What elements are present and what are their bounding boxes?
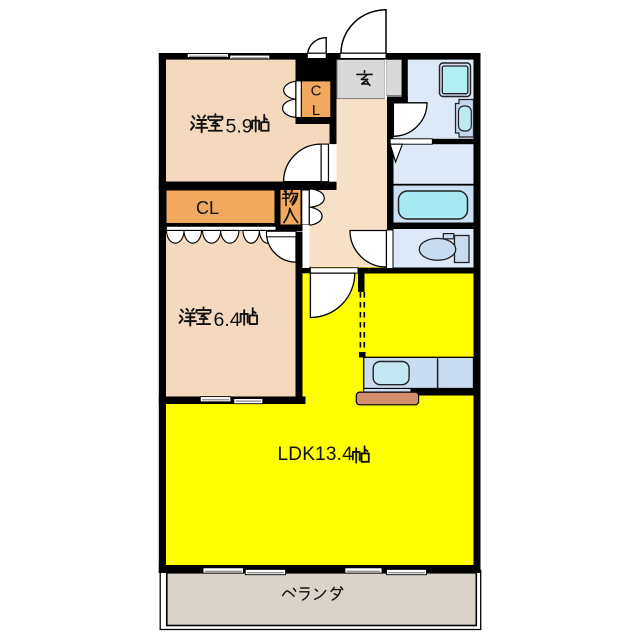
svg-text:CL: CL xyxy=(196,198,219,218)
svg-text:C: C xyxy=(311,83,322,100)
svg-text:L: L xyxy=(312,102,320,119)
svg-text:6.4: 6.4 xyxy=(214,309,241,331)
svg-text:LDK13.4: LDK13.4 xyxy=(278,444,354,465)
svg-text:5.9: 5.9 xyxy=(226,115,253,137)
